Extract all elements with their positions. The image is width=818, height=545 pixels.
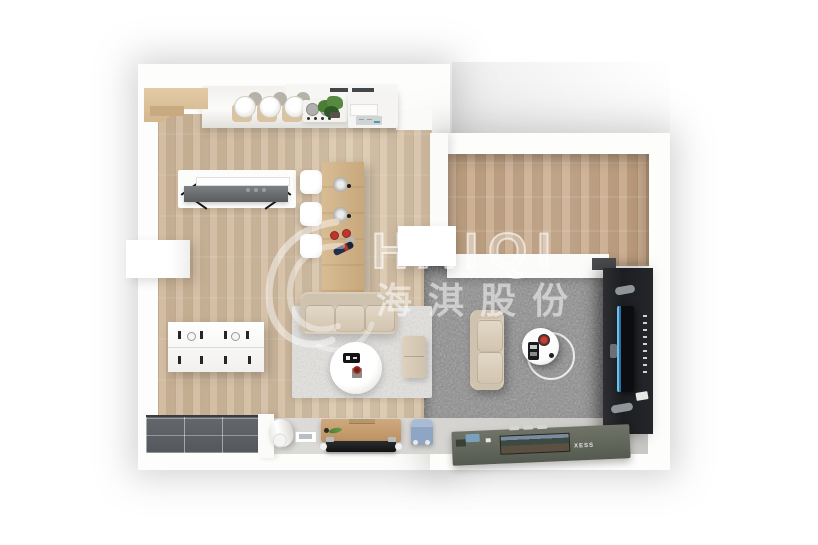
caption-tick-icon [643, 357, 647, 359]
sofa-cushion [305, 305, 335, 332]
left-door-leaf [126, 240, 190, 278]
bar-stool [234, 96, 256, 118]
knob-icon [314, 117, 317, 120]
dining-chair [300, 170, 322, 194]
dark-dot-icon [324, 428, 329, 433]
carpet-texture [424, 266, 608, 430]
console-desk-top [184, 186, 288, 202]
green-plant-icon [329, 427, 343, 435]
drawer-handle-icon [246, 331, 249, 339]
tray-item-icon [346, 356, 350, 360]
serving-tray-icon [343, 353, 360, 363]
ottoman-seam [404, 356, 424, 357]
pot-handle-icon [347, 214, 351, 218]
wood-shelf-board [150, 106, 184, 116]
steel-pot-icon [333, 207, 348, 222]
pot-handle-icon [347, 184, 351, 188]
sink-slot-icon [330, 88, 348, 92]
floorplan-render: XESS HAIQI 海淇股份 [0, 0, 818, 545]
red-gadget-icon [538, 334, 550, 346]
red-cup-icon [330, 231, 339, 240]
tablet [295, 431, 317, 443]
handle-slot-icon [614, 284, 635, 295]
desk-item-icon [262, 188, 266, 192]
panel-line-icon [367, 119, 372, 120]
flat-tv-brand-label: XESS [574, 443, 594, 450]
black-dot-icon [549, 353, 554, 358]
top-tab-icon [509, 426, 519, 430]
wall-center-block [398, 226, 456, 266]
loveseat-armrest [473, 310, 501, 319]
tray-item-icon [353, 357, 357, 359]
white-chip-icon [486, 438, 491, 442]
smart-speaker-icon [528, 342, 539, 360]
cap-dot-icon [320, 443, 327, 450]
wall-under-bedroom [447, 254, 609, 278]
loveseat-cushion [477, 320, 503, 352]
wall-tv [617, 306, 634, 392]
den-carpet [424, 266, 608, 430]
caption-tick-icon [643, 364, 647, 366]
caption-tick-icon [643, 336, 647, 338]
cabinet-notch-icon [349, 419, 375, 424]
drawer-handle-icon [248, 356, 251, 364]
tv-feature-wall [603, 268, 653, 434]
left-pad-icon [456, 439, 466, 446]
round-coffee-table [330, 342, 382, 394]
desk-item-icon [254, 188, 258, 192]
drawer-handle-icon [224, 331, 227, 339]
dining-chair [300, 234, 322, 258]
kids-chair [411, 419, 433, 445]
background-shading [452, 62, 670, 134]
counter-end-wall [396, 110, 432, 130]
bracket-icon [388, 437, 396, 442]
steel-pot-icon [333, 177, 348, 192]
ottoman [402, 336, 426, 378]
shoe-dresser [168, 322, 264, 372]
tv-panel [326, 441, 396, 452]
desk-item-icon [246, 188, 250, 192]
speaker-slot-icon [530, 352, 537, 356]
drawer-knob-icon [187, 332, 196, 341]
top-tab-icon [537, 425, 547, 429]
sofa-cushion [365, 305, 395, 332]
speaker-slot-icon [530, 345, 537, 349]
drawer-knob-icon [231, 332, 240, 341]
vertical-caption-ticks [641, 310, 649, 390]
bedroom-wood-floor [447, 154, 649, 266]
caption-tick-icon [643, 329, 647, 331]
loveseat [470, 310, 504, 390]
balcony-tile-floor [146, 415, 262, 453]
knob-icon [307, 117, 310, 120]
panel-display-icon [374, 121, 380, 123]
flat-tv-screen [500, 433, 571, 455]
drawer-handle-icon [200, 331, 203, 339]
drawer-handle-icon [224, 356, 227, 364]
panel-line-icon [359, 119, 364, 120]
bracket-icon [326, 437, 334, 442]
tv-stand-icon [610, 344, 617, 358]
microwave-icon [350, 104, 378, 116]
label-card-icon [635, 391, 648, 401]
loveseat-cushion [477, 352, 503, 384]
three-seat-sofa [300, 292, 398, 334]
sofa-cushion [335, 305, 365, 332]
blue-tag-icon [465, 434, 479, 443]
chair-foot-icon [413, 440, 418, 445]
plant-pot-icon [330, 112, 340, 118]
drawer-handle-icon [178, 331, 181, 339]
chair-foot-icon [425, 440, 430, 445]
dining-chair [300, 202, 322, 226]
caption-tick-icon [643, 350, 647, 352]
drawer-handle-icon [200, 356, 203, 364]
dresser-divider [168, 347, 264, 348]
red-flower-icon [353, 366, 361, 374]
bar-stool [259, 96, 281, 118]
handle-slot-icon [610, 402, 633, 414]
appliance-cabinet [348, 92, 398, 128]
console-shelf [196, 177, 290, 186]
control-panel [356, 116, 382, 125]
round-side-table [522, 328, 559, 365]
caption-tick-icon [643, 322, 647, 324]
top-tab-icon [523, 425, 533, 429]
drawer-handle-icon [178, 356, 181, 364]
caption-tick-icon [643, 315, 647, 317]
cap-dot-icon [395, 443, 402, 450]
caption-tick-icon [643, 371, 647, 373]
herb-plant [318, 96, 348, 122]
caption-tick-icon [643, 343, 647, 345]
tablet-screen-icon [299, 434, 312, 439]
